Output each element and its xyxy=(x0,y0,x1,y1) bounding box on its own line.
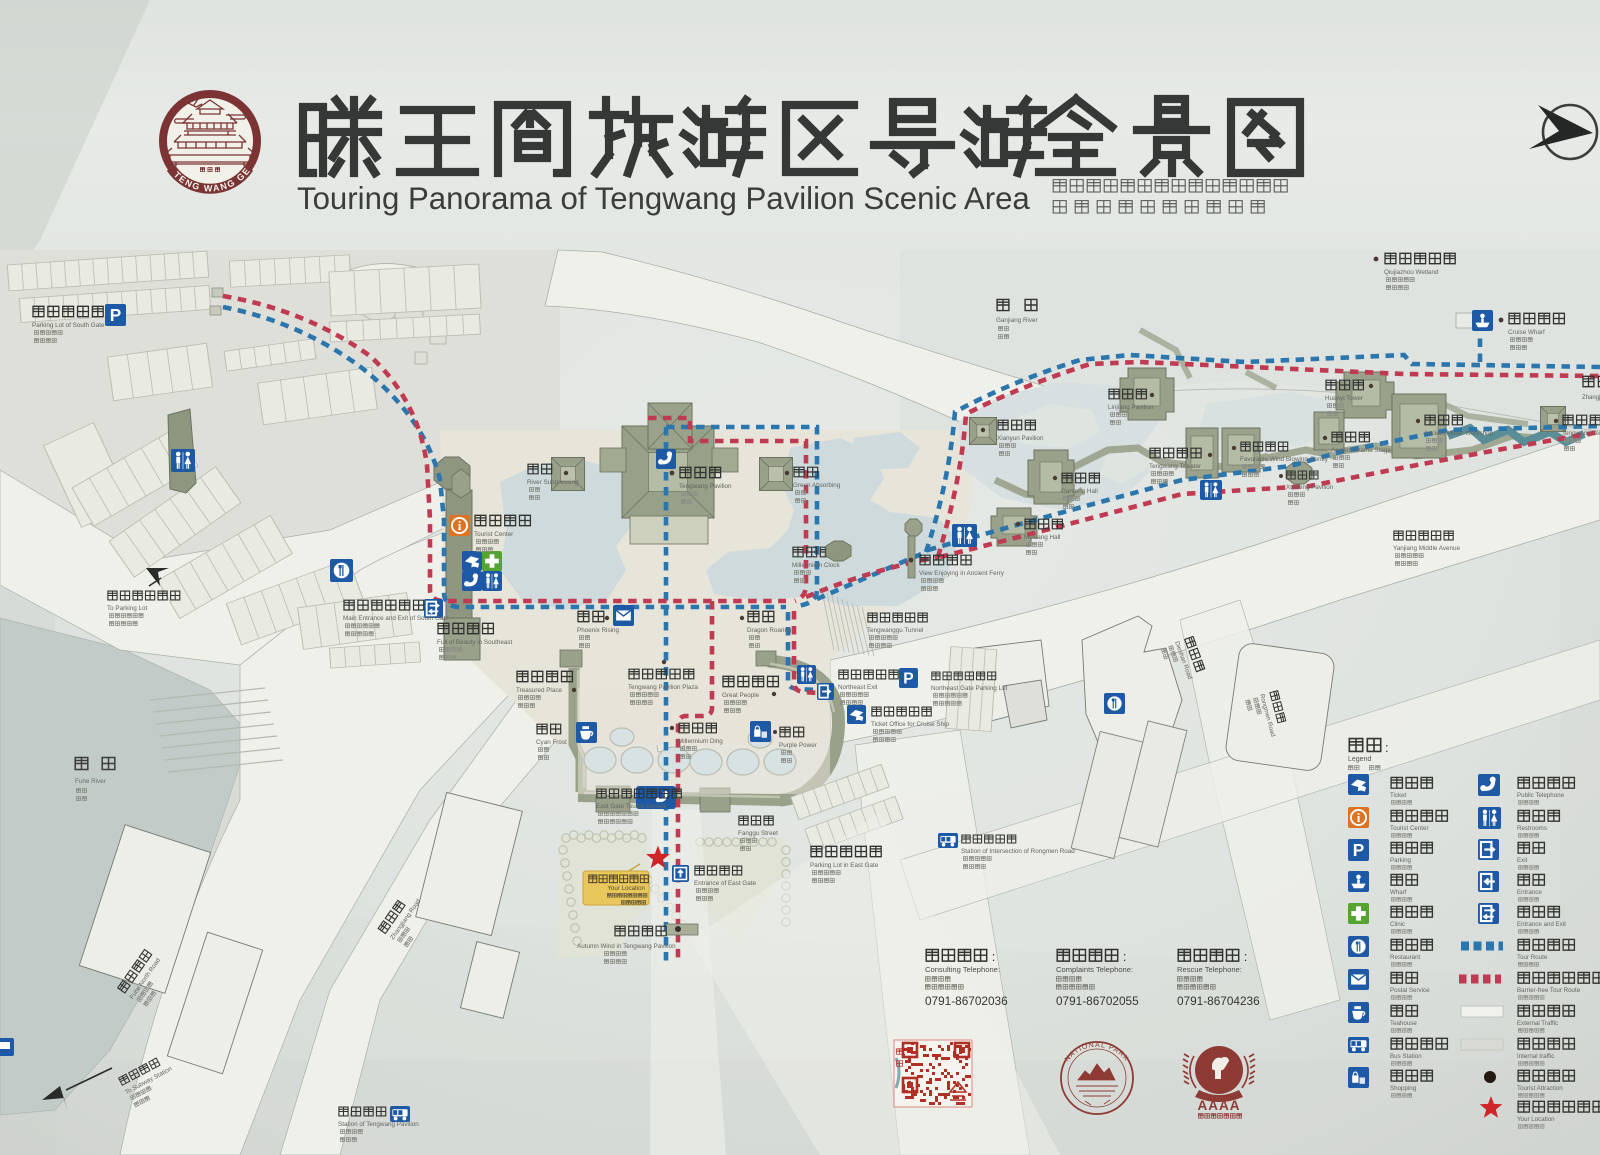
svg-text:Xunfeng Pavilion: Xunfeng Pavilion xyxy=(1286,484,1334,491)
svg-text:0791-86702055: 0791-86702055 xyxy=(1056,994,1139,1008)
svg-text:Qiujiazhou Wetland: Qiujiazhou Wetland xyxy=(1384,269,1439,276)
svg-text:Full of Beauty in Southeast: Full of Beauty in Southeast xyxy=(437,639,513,646)
svg-text::: : xyxy=(1385,740,1389,755)
svg-text:Fanggu Street: Fanggu Street xyxy=(738,830,778,837)
svg-text:Phoenix Rising: Phoenix Rising xyxy=(577,627,620,634)
svg-text:Touring Panorama of Tengwang P: Touring Panorama of Tengwang Pavilion Sc… xyxy=(297,181,1030,216)
svg-text:Great People: Great People xyxy=(722,692,760,699)
svg-text:Ticket: Ticket xyxy=(1390,792,1407,799)
svg-text:Postal Service: Postal Service xyxy=(1390,987,1430,994)
svg-text:Linjiang Pavilion: Linjiang Pavilion xyxy=(1108,404,1154,411)
svg-text:Restaurant: Restaurant xyxy=(1390,954,1421,961)
svg-text:Autumn Wind in Tengwang Pavili: Autumn Wind in Tengwang Pavilion xyxy=(577,943,676,950)
svg-text::: : xyxy=(992,949,996,964)
svg-text:Fuhe River: Fuhe River xyxy=(75,778,106,785)
svg-text:Ancient Music Workshop: Ancient Music Workshop xyxy=(1424,430,1494,437)
svg-text:P: P xyxy=(110,305,121,325)
svg-text:Restrooms: Restrooms xyxy=(1517,825,1547,832)
svg-text::: : xyxy=(1123,949,1127,964)
svg-text:AAAA: AAAA xyxy=(1198,1098,1241,1113)
svg-text:Cyan Frost: Cyan Frost xyxy=(536,739,567,746)
svg-text:View Enjoying in Ancient Ferry: View Enjoying in Ancient Ferry xyxy=(919,570,1005,577)
svg-text:Tengwang Pavilion: Tengwang Pavilion xyxy=(679,483,732,490)
svg-text:Dragon Roaring: Dragon Roaring xyxy=(747,627,792,634)
svg-text:P: P xyxy=(903,671,913,688)
svg-text:Parking: Parking xyxy=(1390,857,1412,864)
svg-text:Rescue Telephone:: Rescue Telephone: xyxy=(1177,965,1242,974)
svg-text:Purple Power: Purple Power xyxy=(779,742,817,749)
svg-text:P: P xyxy=(1353,840,1364,860)
svg-text:Tengwang Theater: Tengwang Theater xyxy=(1149,463,1201,470)
svg-text:Ancient Drama Stage: Ancient Drama Stage xyxy=(1331,447,1391,454)
svg-text:i: i xyxy=(1357,810,1361,825)
svg-text:External Traffic: External Traffic xyxy=(1517,1020,1558,1027)
svg-text:0791-86704236: 0791-86704236 xyxy=(1177,994,1260,1008)
svg-text:Station of Tengwang Pavilion: Station of Tengwang Pavilion xyxy=(338,1121,419,1128)
svg-text:Barrier-free Tour Route: Barrier-free Tour Route xyxy=(1517,987,1581,994)
svg-text:Xianyun Pavilion: Xianyun Pavilion xyxy=(997,435,1044,442)
svg-text:Bus Station: Bus Station xyxy=(1390,1053,1422,1060)
svg-text:Internal traffic: Internal traffic xyxy=(1517,1053,1554,1060)
svg-text:Ticket Office for Cruise Ship: Ticket Office for Cruise Ship xyxy=(871,721,950,728)
svg-text:Public Telephone: Public Telephone xyxy=(1517,792,1565,799)
svg-text:Entrance of East Gate: Entrance of East Gate xyxy=(694,880,756,887)
svg-text:Tengwang Pavilion Plaza: Tengwang Pavilion Plaza xyxy=(628,684,699,691)
svg-text:River Suppressing: River Suppressing xyxy=(527,479,579,486)
svg-text:Tour Route: Tour Route xyxy=(1517,954,1548,961)
svg-text:Consulting Telephone:: Consulting Telephone: xyxy=(925,965,1000,974)
svg-text:Northeast Gate Parking Lot: Northeast Gate Parking Lot xyxy=(931,685,1008,692)
svg-text:Millennium Ding: Millennium Ding xyxy=(678,738,723,745)
svg-text:Parking Lot in East Gate: Parking Lot in East Gate xyxy=(810,862,879,869)
svg-text:Legend: Legend xyxy=(1348,756,1371,763)
svg-text:Zhangjiang: Zhangjiang xyxy=(1582,395,1600,401)
svg-text:To Parking Lot: To Parking Lot xyxy=(107,605,148,612)
svg-text:0791-86702036: 0791-86702036 xyxy=(925,994,1008,1008)
svg-text:Your Location: Your Location xyxy=(607,885,645,892)
svg-text:Your Location: Your Location xyxy=(1517,1116,1555,1123)
svg-text:Parking Lot of South Gate: Parking Lot of South Gate xyxy=(32,322,105,329)
svg-text:Moxiang Hall: Moxiang Hall xyxy=(1024,534,1060,541)
svg-text:Cruise Wharf: Cruise Wharf xyxy=(1508,329,1545,336)
svg-text:Exit: Exit xyxy=(1517,857,1528,864)
svg-text:Green Absorbing: Green Absorbing xyxy=(793,482,841,489)
svg-text:Ganfeng Hall: Ganfeng Hall xyxy=(1061,488,1098,495)
svg-text:Wharf: Wharf xyxy=(1390,889,1407,896)
svg-text:Yanjiang Middle Avenue: Yanjiang Middle Avenue xyxy=(1393,545,1460,552)
svg-text:Tourist Center: Tourist Center xyxy=(1390,825,1429,832)
svg-text:Entrance: Entrance xyxy=(1517,889,1542,896)
svg-text:Favorable Wind Blowing Gently: Favorable Wind Blowing Gently xyxy=(1240,456,1329,463)
svg-text:Entrance and Exit: Entrance and Exit xyxy=(1517,921,1566,928)
svg-text:Complaints Telephone:: Complaints Telephone: xyxy=(1056,965,1133,974)
svg-text:Station of Intersection of Ron: Station of Intersection of Rongmen Road xyxy=(961,848,1075,855)
svg-text:i: i xyxy=(458,518,462,533)
svg-text:East Gate Tourist Service: East Gate Tourist Service xyxy=(596,803,667,810)
svg-text:Clinic: Clinic xyxy=(1390,921,1405,928)
svg-text:Main Entrance and Exit of Sout: Main Entrance and Exit of South Gate xyxy=(343,615,449,622)
svg-text:Shopping: Shopping xyxy=(1390,1085,1417,1092)
svg-text:Tengwang Terrace: Tengwang Terrace xyxy=(1562,430,1600,437)
svg-text:Teahouse: Teahouse xyxy=(1390,1020,1417,1027)
svg-text:Huanyi Tower: Huanyi Tower xyxy=(1325,395,1363,402)
svg-text:Tengwanggu Tunnel: Tengwanggu Tunnel xyxy=(867,627,923,634)
svg-text:Treasured Place: Treasured Place xyxy=(516,687,562,694)
svg-text:Tourist Attraction: Tourist Attraction xyxy=(1517,1085,1563,1092)
svg-text:Northeast Exit: Northeast Exit xyxy=(838,684,878,691)
svg-text:Ganjiang River: Ganjiang River xyxy=(996,317,1038,324)
svg-text::: : xyxy=(1244,949,1248,964)
svg-text:Millennium Clock: Millennium Clock xyxy=(792,562,840,569)
svg-text:Tourist Center: Tourist Center xyxy=(474,531,513,538)
